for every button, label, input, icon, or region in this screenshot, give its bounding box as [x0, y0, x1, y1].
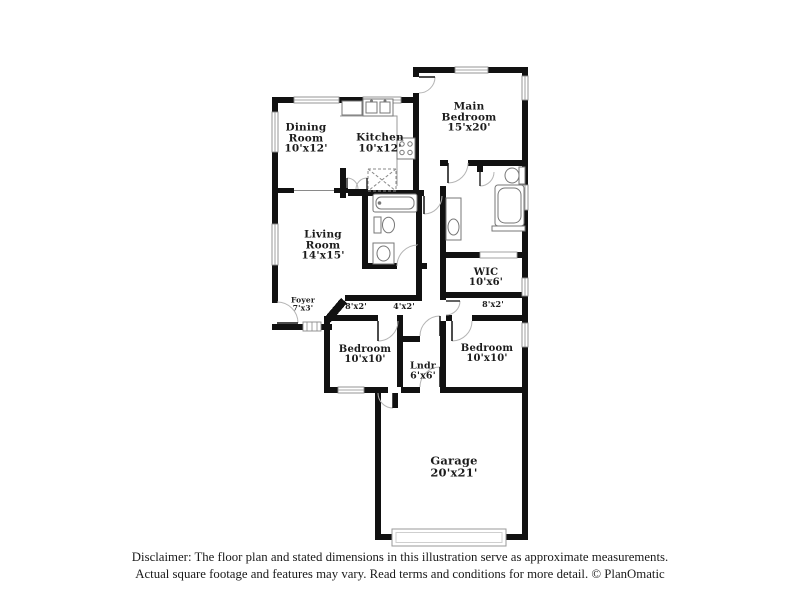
- kitchen-sink: [363, 99, 393, 116]
- room-label-hall-center: 4'x2': [393, 302, 415, 310]
- wall-segment: [334, 188, 348, 193]
- wall-segment: [477, 160, 483, 172]
- pantry: [368, 169, 396, 191]
- room-label-foyer: Foyer 7'x3': [291, 297, 315, 312]
- wall-segment: [440, 387, 528, 393]
- wall-segment: [413, 93, 419, 103]
- room-label-bedroom-left: Bedroom 10'x10': [339, 345, 391, 365]
- room-label-laundry: Lndr 6'x6': [410, 362, 436, 381]
- room-name: Living: [301, 229, 344, 240]
- main-toilet: [505, 167, 525, 184]
- wic-cased-opening: [480, 252, 517, 258]
- dishwasher: [342, 101, 362, 115]
- toilet-room-door: [480, 172, 494, 186]
- right-hall-door: [446, 301, 460, 315]
- room-dims: 10'x10': [339, 355, 391, 365]
- wall-segment: [340, 168, 346, 198]
- room-dims: 10'x12': [356, 143, 404, 154]
- wall-segment: [522, 347, 528, 540]
- room-label-bedroom-right: Bedroom 10'x10': [461, 344, 513, 364]
- room-dims: 14'x15': [301, 250, 344, 261]
- room-dims: 10'x10': [461, 354, 513, 364]
- room-label-hall-left: 8'x2': [345, 302, 367, 310]
- room-dims: 20'x21': [430, 467, 477, 479]
- main-bedroom-patio-door: [419, 77, 435, 93]
- wall-segment: [272, 265, 278, 303]
- main-bath-vanity: [446, 198, 461, 240]
- bedroom-right-door: [452, 321, 472, 341]
- room-label-garage: Garage 20'x21': [430, 456, 477, 479]
- wall-segment: [272, 324, 303, 330]
- main-bath-door: [448, 163, 468, 183]
- floor-plan-page: Dining Room 10'x12' Kitchen 10'x12' Main…: [0, 0, 800, 596]
- wall-segment: [278, 188, 294, 193]
- wall-segment: [364, 387, 388, 393]
- wall-segment: [419, 190, 424, 196]
- wall-segment: [324, 316, 330, 393]
- room-label-wic: WIC 10'x6': [469, 268, 503, 288]
- wall-segment: [375, 393, 381, 540]
- wall-segment: [403, 336, 420, 342]
- disclaimer-line-1: Disclaimer: The floor plan and stated di…: [0, 549, 800, 566]
- wall-segment: [272, 152, 278, 224]
- room-label-dining-room: Dining Room 10'x12': [284, 122, 327, 154]
- wall-segment: [272, 103, 278, 113]
- room-dims: 15'x20': [442, 122, 497, 133]
- wall-segment: [413, 73, 419, 77]
- room-label-living-room: Living Room 14'x15': [301, 229, 344, 261]
- room-name: Dining: [284, 122, 327, 133]
- wall-segment: [413, 67, 455, 73]
- wall-segment: [468, 160, 477, 166]
- wall-segment: [362, 196, 368, 269]
- wall-segment: [330, 315, 378, 321]
- room-dims: 10'x12': [284, 143, 327, 154]
- room-label-kitchen: Kitchen 10'x12': [356, 133, 404, 154]
- wall-segment: [517, 252, 528, 258]
- room-dims: 6'x6': [410, 371, 436, 381]
- room-label-hall-right: 8'x2': [482, 300, 504, 308]
- room-name: Main: [442, 101, 497, 112]
- wall-segment: [272, 97, 294, 103]
- laundry-top-door: [420, 316, 440, 336]
- hall-bathtub: [373, 194, 417, 212]
- wall-segment: [446, 315, 452, 321]
- wall-segment: [401, 387, 420, 393]
- hall-bath-door: [397, 245, 418, 266]
- disclaimer-line-2: Actual square footage and features may v…: [0, 566, 800, 583]
- kitchen-closet-double-doors: [347, 178, 367, 189]
- room-dims: 4'x2': [393, 302, 415, 310]
- hall-bath-sink: [373, 243, 394, 264]
- wall-segment: [446, 292, 528, 298]
- room-dims: 10'x6': [469, 278, 503, 288]
- wall-segment: [440, 160, 446, 166]
- wall-segment: [446, 252, 480, 258]
- room-dims: 7'x3': [291, 304, 315, 312]
- room-name: Kitchen: [356, 133, 404, 144]
- floor-plan-drawing: [0, 0, 800, 596]
- suite-hall-door: [424, 196, 442, 214]
- wall-segment: [472, 315, 528, 321]
- room-label-main-bedroom: Main Bedroom 15'x20': [442, 101, 497, 133]
- wall-segment: [440, 321, 446, 387]
- wall-segment: [348, 189, 368, 196]
- main-bathtub: [492, 185, 525, 231]
- disclaimer: Disclaimer: The floor plan and stated di…: [0, 549, 800, 582]
- wall-segment: [483, 160, 522, 166]
- hall-toilet: [374, 217, 395, 233]
- bedroom-left-door: [378, 321, 398, 341]
- garage-door-inner: [396, 533, 502, 543]
- wall-segment: [488, 67, 528, 73]
- room-dims: 8'x2': [482, 300, 504, 308]
- wall-segment: [330, 387, 338, 393]
- room-dims: 8'x2': [345, 302, 367, 310]
